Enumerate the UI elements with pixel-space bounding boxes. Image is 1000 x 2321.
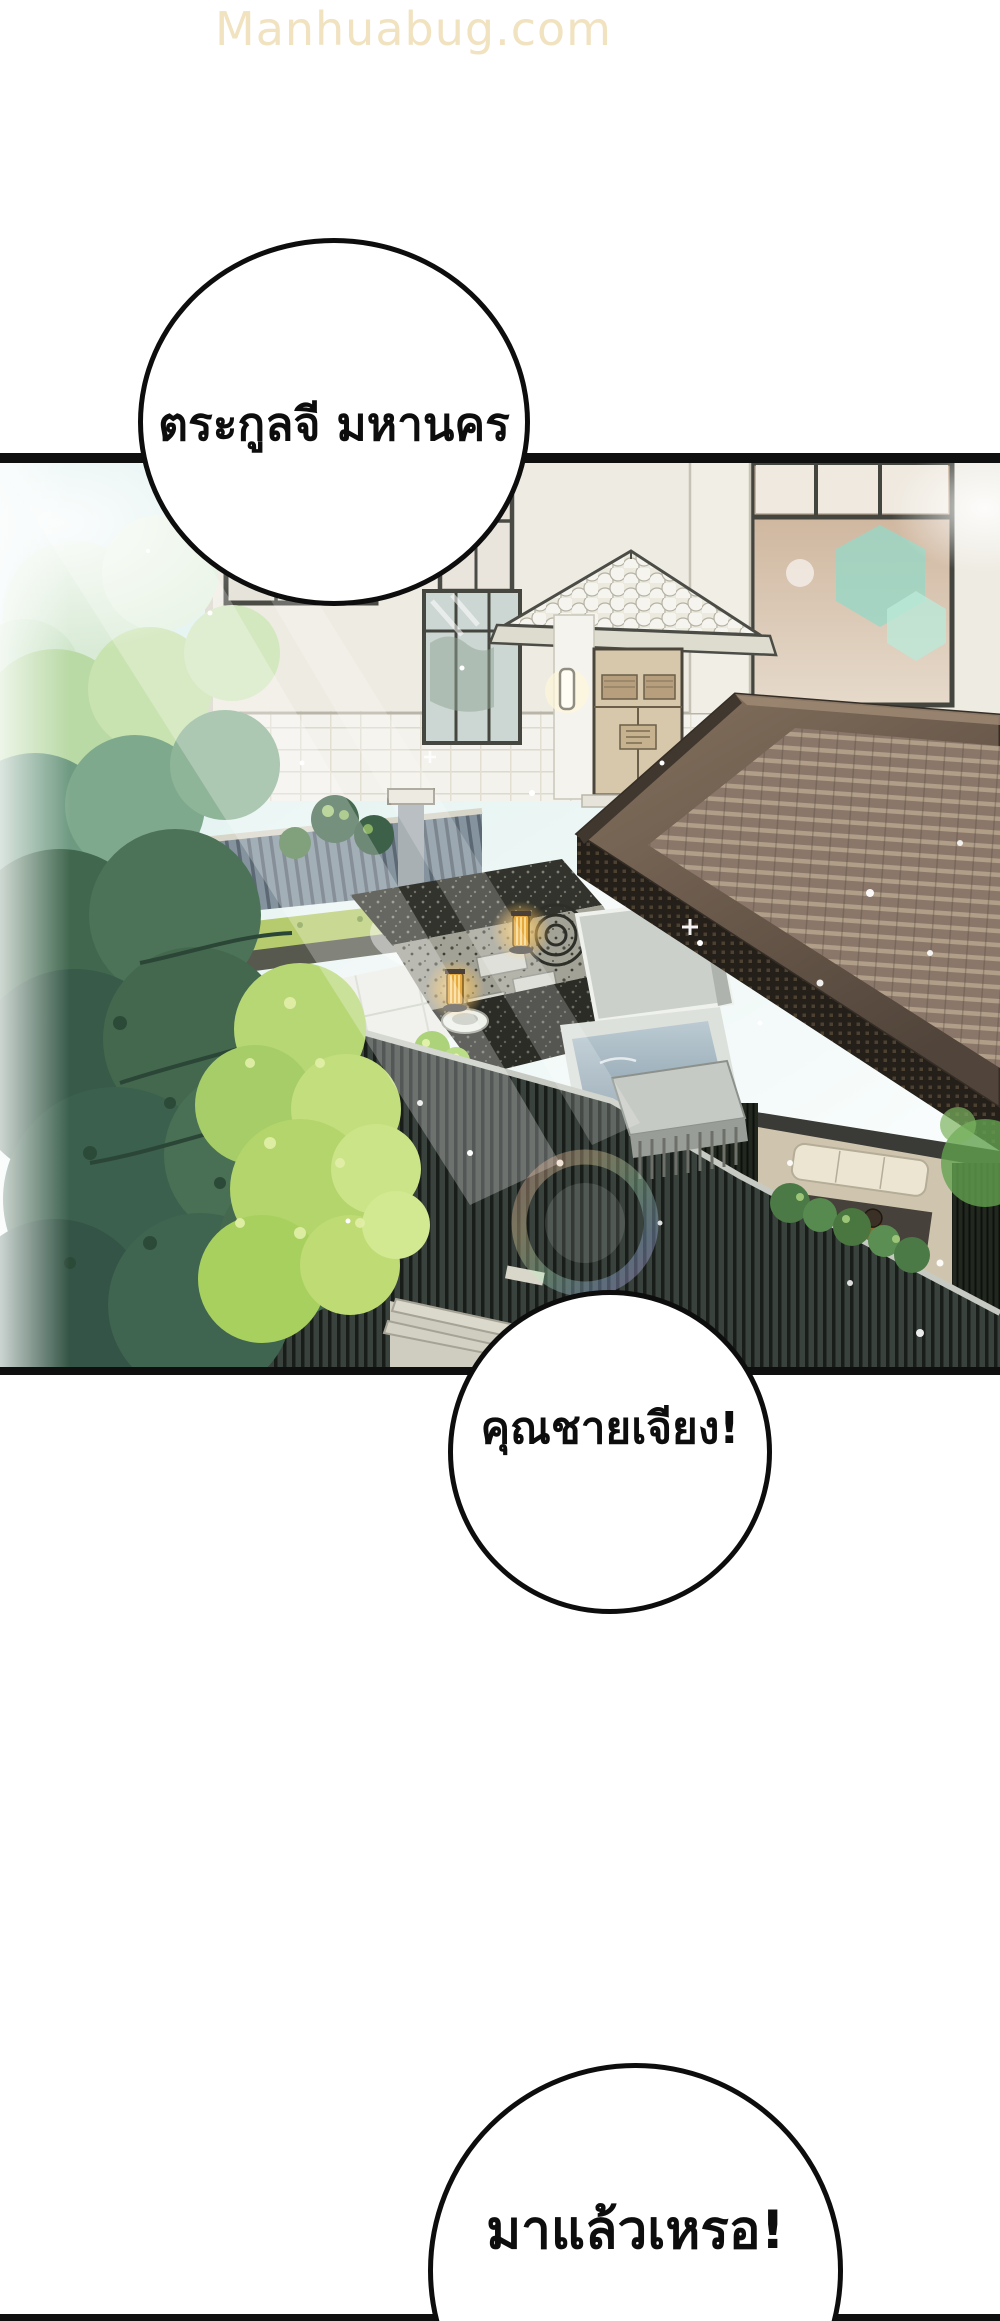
- speech-bubble-bottom: มาแล้วเหรอ!: [428, 2063, 843, 2321]
- speech-text: มาแล้วเหรอ!: [486, 2190, 785, 2272]
- scene-panel: [0, 453, 1000, 1375]
- speech-bubble-middle: คุณชายเจียง!: [448, 1290, 772, 1614]
- speech-text: คุณชายเจียง!: [481, 1395, 740, 1463]
- wall-lamp: [560, 669, 574, 709]
- speech-text: ตระกูลจี มหานคร: [158, 389, 510, 460]
- watermark: Manhuabug.com: [215, 2, 612, 56]
- speech-bubble-top: ตระกูลจี มหานคร: [138, 238, 530, 606]
- glass-curtain-wall: [424, 591, 520, 743]
- comic-page: Manhuabug.com: [0, 0, 1000, 2321]
- scene-illustration: [0, 463, 1000, 1367]
- edge-haze: [0, 463, 70, 1367]
